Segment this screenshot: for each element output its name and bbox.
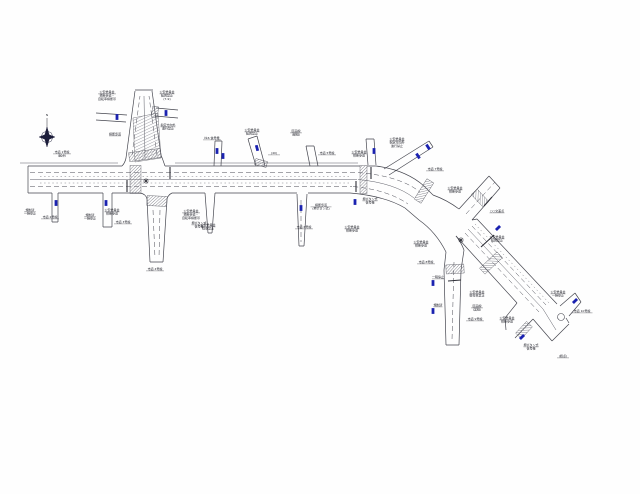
svg-text:公安委員会転回禁止: 公安委員会転回禁止 [489, 234, 504, 242]
annotation-label: 区画線(実線) [471, 303, 483, 311]
annotation-label: (40) [268, 151, 280, 155]
cad-drawing-viewport: 市道 1号線(起点)公安委員会横断歩道・自転車横断帯公安委員会転回禁止(7-9)… [0, 0, 640, 494]
regulatory-sign-icon [354, 199, 357, 205]
svg-text:公安委員会横断歩道・自転車横断帯: 公安委員会横断歩道・自転車横断帯 [182, 208, 200, 220]
annotation-label: 市道 5号線 [318, 150, 336, 155]
annotation-label: 規制済一時停止 [84, 212, 96, 220]
regulatory-sign-icon [415, 153, 421, 159]
svg-text:市道 7号線: 市道 7号線 [428, 166, 443, 171]
regulatory-sign-icon [432, 308, 435, 314]
regulatory-sign-icon [373, 148, 376, 154]
svg-text:市道 10号線: 市道 10号線 [574, 308, 591, 313]
annotation-label: 公安委員会横断歩道・自転車横断帯 [182, 208, 200, 220]
svg-text:市道 5号線: 市道 5号線 [320, 150, 335, 155]
annotation-label: 公安委員会転回禁止 [244, 127, 259, 135]
annotation-label: 区画線(破線) [290, 128, 302, 136]
svg-text:市道 1号線(起点): 市道 1号線(起点) [55, 149, 70, 157]
regulatory-sign-icon [222, 153, 225, 159]
annotation-label: №6 信号機 [203, 135, 221, 140]
annotation-label: 公安委員会指定方向外進行禁止 [389, 136, 404, 148]
svg-text:公安委員会一時停止: 公安委員会一時停止 [550, 289, 565, 297]
svg-text:市道 9号線: 市道 9号線 [468, 316, 483, 321]
svg-text:公安委員会横断歩道: 公安委員会横断歩道 [351, 149, 366, 157]
crosswalk [151, 106, 158, 118]
annotation-label: 公安委員会駐停車禁止 [469, 289, 484, 297]
svg-text:市道 3号線: 市道 3号線 [116, 219, 131, 224]
annotation-label: 公安委員会横断歩道 [447, 185, 462, 193]
annotation-label: 市道 4号線 [146, 266, 164, 271]
annotation-label: 公安委員会駐車禁止 [200, 222, 215, 230]
svg-text:公安委員会横断歩道: 公安委員会横断歩道 [104, 207, 119, 215]
annotation-label: 市道 9号線 [466, 316, 484, 321]
regulatory-sign-icon [300, 205, 303, 211]
annotation-label: 規制済一時停止 [24, 207, 36, 215]
svg-text:公安委員会横断歩道: 公安委員会横断歩道 [499, 315, 514, 323]
channel-island [558, 314, 565, 321]
annotation-label: 横断歩道 [109, 131, 121, 136]
annotation-label: 市道 8号線 [417, 259, 435, 264]
crosswalk [147, 195, 167, 206]
annotation-label: 市道 3号線 [114, 219, 132, 224]
annotation-label: 公安委員会横断歩道 [104, 207, 119, 215]
svg-text:横断歩道: 横断歩道 [109, 131, 121, 136]
annotation-label: 公安委員会転回禁止(7-9) [159, 89, 174, 101]
regulatory-sign-icon [105, 200, 108, 206]
svg-text:押ボタン式信号機: 押ボタン式信号機 [523, 342, 538, 350]
svg-text:(終点): (終点) [559, 353, 567, 358]
annotation-label: 押ボタン式信号機 [362, 196, 377, 204]
svg-text:規制済: 規制済 [433, 302, 442, 307]
svg-text:(40): (40) [271, 151, 277, 155]
regulatory-sign-icon [432, 280, 435, 286]
annotation-label: 市道 2号線 [41, 214, 59, 219]
svg-text:市道 2号線: 市道 2号線 [43, 214, 58, 219]
annotation-labels: 市道 1号線(起点)公安委員会横断歩道・自転車横断帯公安委員会転回禁止(7-9)… [24, 89, 593, 358]
annotation-label: 規制済 [433, 302, 442, 307]
annotation-label: 一時停止 [432, 274, 444, 279]
svg-text:指定方向外進行禁止: 指定方向外進行禁止 [160, 122, 175, 130]
annotation-label: 公安委員会横断歩道 [351, 149, 366, 157]
svg-text:公安委員会横断歩道: 公安委員会横断歩道 [344, 224, 359, 232]
annotation-label: ○○交差点 [490, 208, 505, 213]
annotation-label: 公安委員会一時停止 [550, 289, 565, 297]
regulatory-sign-icon [216, 148, 219, 154]
stop-lines [127, 167, 494, 281]
svg-text:公安委員会駐車禁止: 公安委員会駐車禁止 [200, 222, 215, 230]
svg-text:公安委員会横断歩道・自転車横断帯: 公安委員会横断歩道・自転車横断帯 [98, 89, 116, 101]
annotation-label: 公安委員会転回禁止 [489, 234, 504, 242]
regulatory-sign-icon [165, 110, 168, 116]
svg-text:公安委員会転回禁止(7-9): 公安委員会転回禁止(7-9) [159, 89, 174, 101]
side-street-d [297, 194, 307, 246]
annotation-label: 指定方向外進行禁止 [160, 122, 175, 130]
north-compass-icon [39, 118, 55, 147]
svg-text:市道 6号線: 市道 6号線 [297, 224, 312, 229]
svg-text:公安委員会横断歩道: 公安委員会横断歩道 [413, 239, 428, 247]
svg-text:一時停止: 一時停止 [432, 274, 444, 279]
crosswalk [130, 166, 141, 194]
svg-text:区画線(実線): 区画線(実線) [472, 303, 481, 311]
annotation-label: 横断歩道(押ボタン式) [311, 202, 332, 210]
svg-text:公安委員会駐停車禁止: 公安委員会駐停車禁止 [469, 289, 484, 297]
annotation-label: 公安委員会横断歩道 [344, 224, 359, 232]
regulatory-sign-icon [572, 298, 578, 304]
crosswalk [479, 252, 502, 274]
annotation-label: 押ボタン式信号機 [523, 342, 538, 350]
annotation-label: 公安委員会横断歩道・自転車横断帯 [98, 89, 116, 101]
annotation-label: 市道 10号線 [572, 308, 593, 313]
annotation-label: 市道 7号線 [426, 166, 444, 171]
svg-text:№6 信号機: №6 信号機 [205, 135, 220, 140]
svg-text:公安委員会転回禁止: 公安委員会転回禁止 [244, 127, 259, 135]
svg-text:区画線(破線): 区画線(破線) [291, 128, 300, 136]
road-plan-drawing: 市道 1号線(起点)公安委員会横断歩道・自転車横断帯公安委員会転回禁止(7-9)… [0, 0, 640, 494]
svg-text:公安委員会横断歩道: 公安委員会横断歩道 [447, 185, 462, 193]
svg-text:市道 8号線: 市道 8号線 [419, 259, 434, 264]
regulatory-sign-icon [55, 200, 58, 206]
annotation-label: 公安委員会横断歩道 [413, 239, 428, 247]
compass-north-label: N [46, 113, 48, 117]
crosswalk [360, 166, 367, 194]
svg-text:横断歩道(押ボタン式): 横断歩道(押ボタン式) [312, 202, 329, 210]
crosswalk [129, 148, 162, 161]
svg-text:規制済一時停止: 規制済一時停止 [24, 207, 36, 215]
traffic-signal-icon [458, 237, 464, 243]
regulatory-sign-icon [495, 225, 501, 231]
svg-text:押ボタン式信号機: 押ボタン式信号機 [362, 196, 377, 204]
crosswalk [446, 264, 464, 274]
crosswalk [414, 179, 434, 204]
svg-text:公安委員会指定方向外進行禁止: 公安委員会指定方向外進行禁止 [389, 136, 404, 148]
svg-text:規制済一時停止: 規制済一時停止 [84, 212, 96, 220]
svg-text:市道 4号線: 市道 4号線 [148, 266, 163, 271]
annotation-label: (終点) [557, 353, 569, 358]
regulatory-sign-icon [116, 114, 119, 120]
annotation-label: 公安委員会横断歩道 [499, 315, 514, 323]
regulatory-signs [55, 110, 578, 340]
svg-text:○○交差点: ○○交差点 [490, 208, 504, 213]
annotation-label: 市道 1号線(起点) [53, 149, 71, 157]
regulatory-sign-icon [255, 145, 259, 151]
annotation-label: 市道 6号線 [295, 224, 313, 229]
